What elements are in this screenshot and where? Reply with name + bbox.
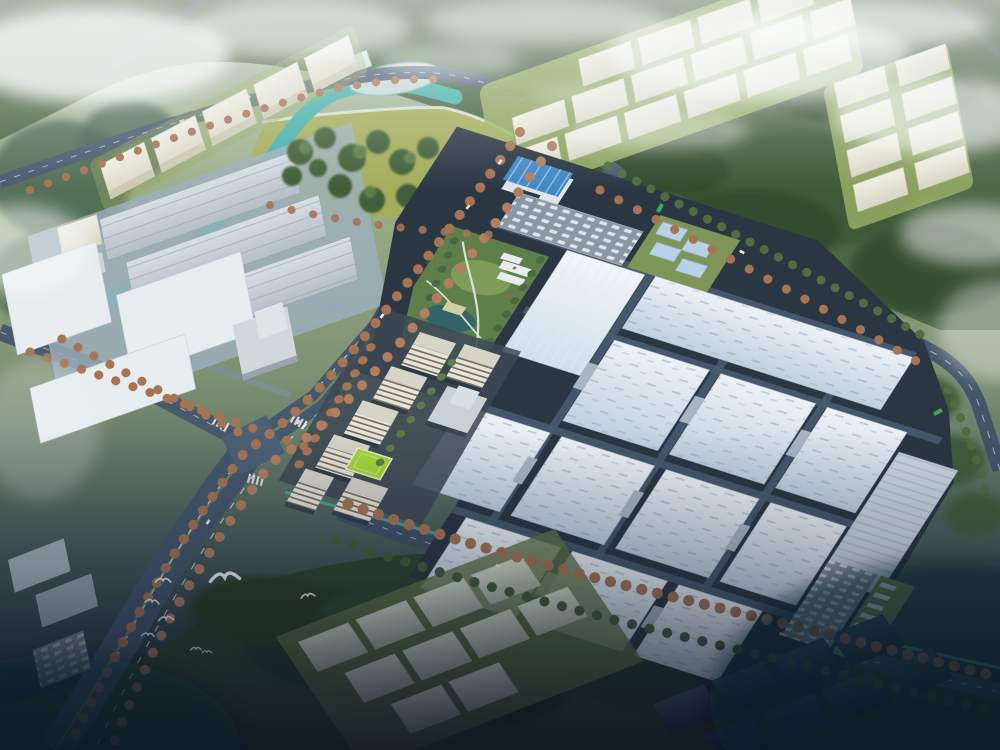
- rendering-canvas: High oblique bird's-eye rendering of an …: [0, 0, 1000, 750]
- aerial-rendering: High oblique bird's-eye rendering of an …: [0, 0, 1000, 750]
- atmosphere-tint: [0, 0, 1000, 750]
